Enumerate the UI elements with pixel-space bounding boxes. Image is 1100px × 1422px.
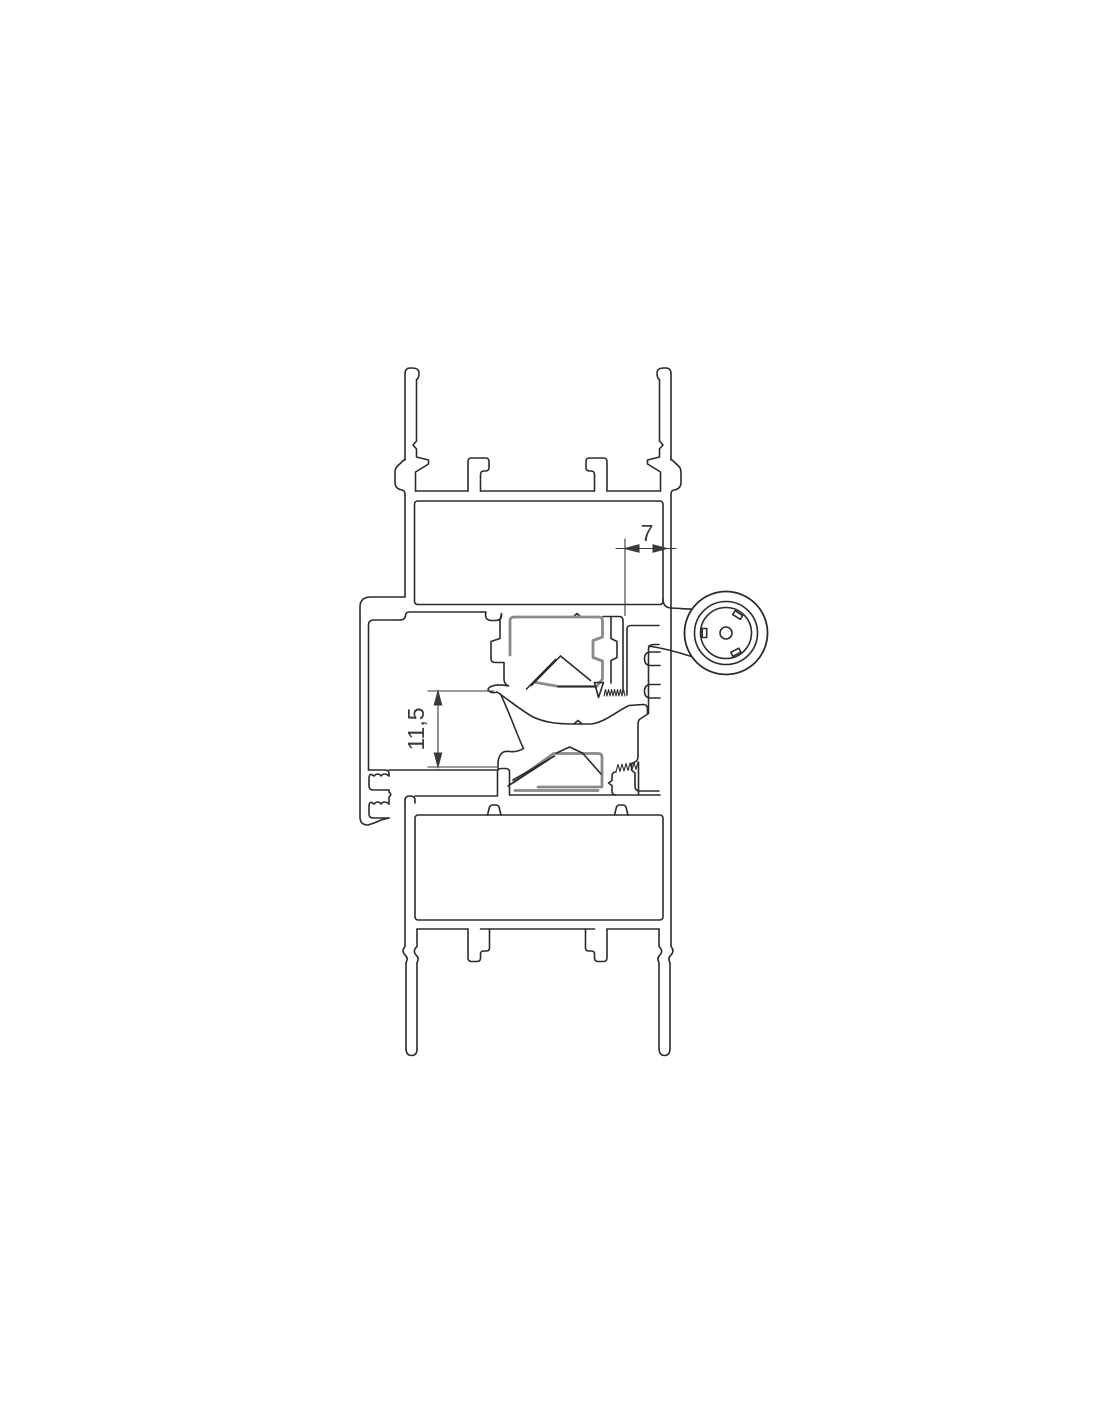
brush-seal-lower [616,762,638,772]
screw-slot-lower [645,685,661,699]
arrowhead-right [653,545,667,552]
brush-seal-upper [604,690,625,697]
serrated-seals [604,690,638,772]
arrowhead-left [625,545,639,552]
dimension-label-gap: 7 [641,520,654,546]
gasket-clip [369,770,391,818]
dimension-annotations: 7 11,5 [403,520,677,767]
upper-gasket [510,617,603,687]
roller-neck-top [663,599,692,609]
bottom-hook-right [586,929,608,962]
arrowhead-down [434,753,441,767]
bottom-channel [403,796,673,1056]
arrowhead-up [434,691,441,705]
dimension-clearance-11-5 [428,691,498,767]
screw-slot-upper [645,652,661,666]
top-channel [395,368,681,944]
weep-bump-right [615,805,629,815]
roller-wheel [649,592,768,675]
gaskets [510,617,603,791]
gasket-blades [508,656,604,786]
bottom-hook-left [468,929,490,962]
lower-threshold [389,694,660,796]
lower-gasket [514,754,602,788]
dimension-label-clearance: 11,5 [403,707,429,750]
upper-box-cavity [415,501,664,605]
drawing-page: 7 11,5 [0,0,1100,1422]
weep-bump-left [488,805,502,815]
profile-cross-section-drawing: 7 11,5 [0,0,1100,1422]
top-hook-right [586,458,607,491]
lower-box-cavity [415,815,663,920]
top-hook-left [468,458,489,491]
